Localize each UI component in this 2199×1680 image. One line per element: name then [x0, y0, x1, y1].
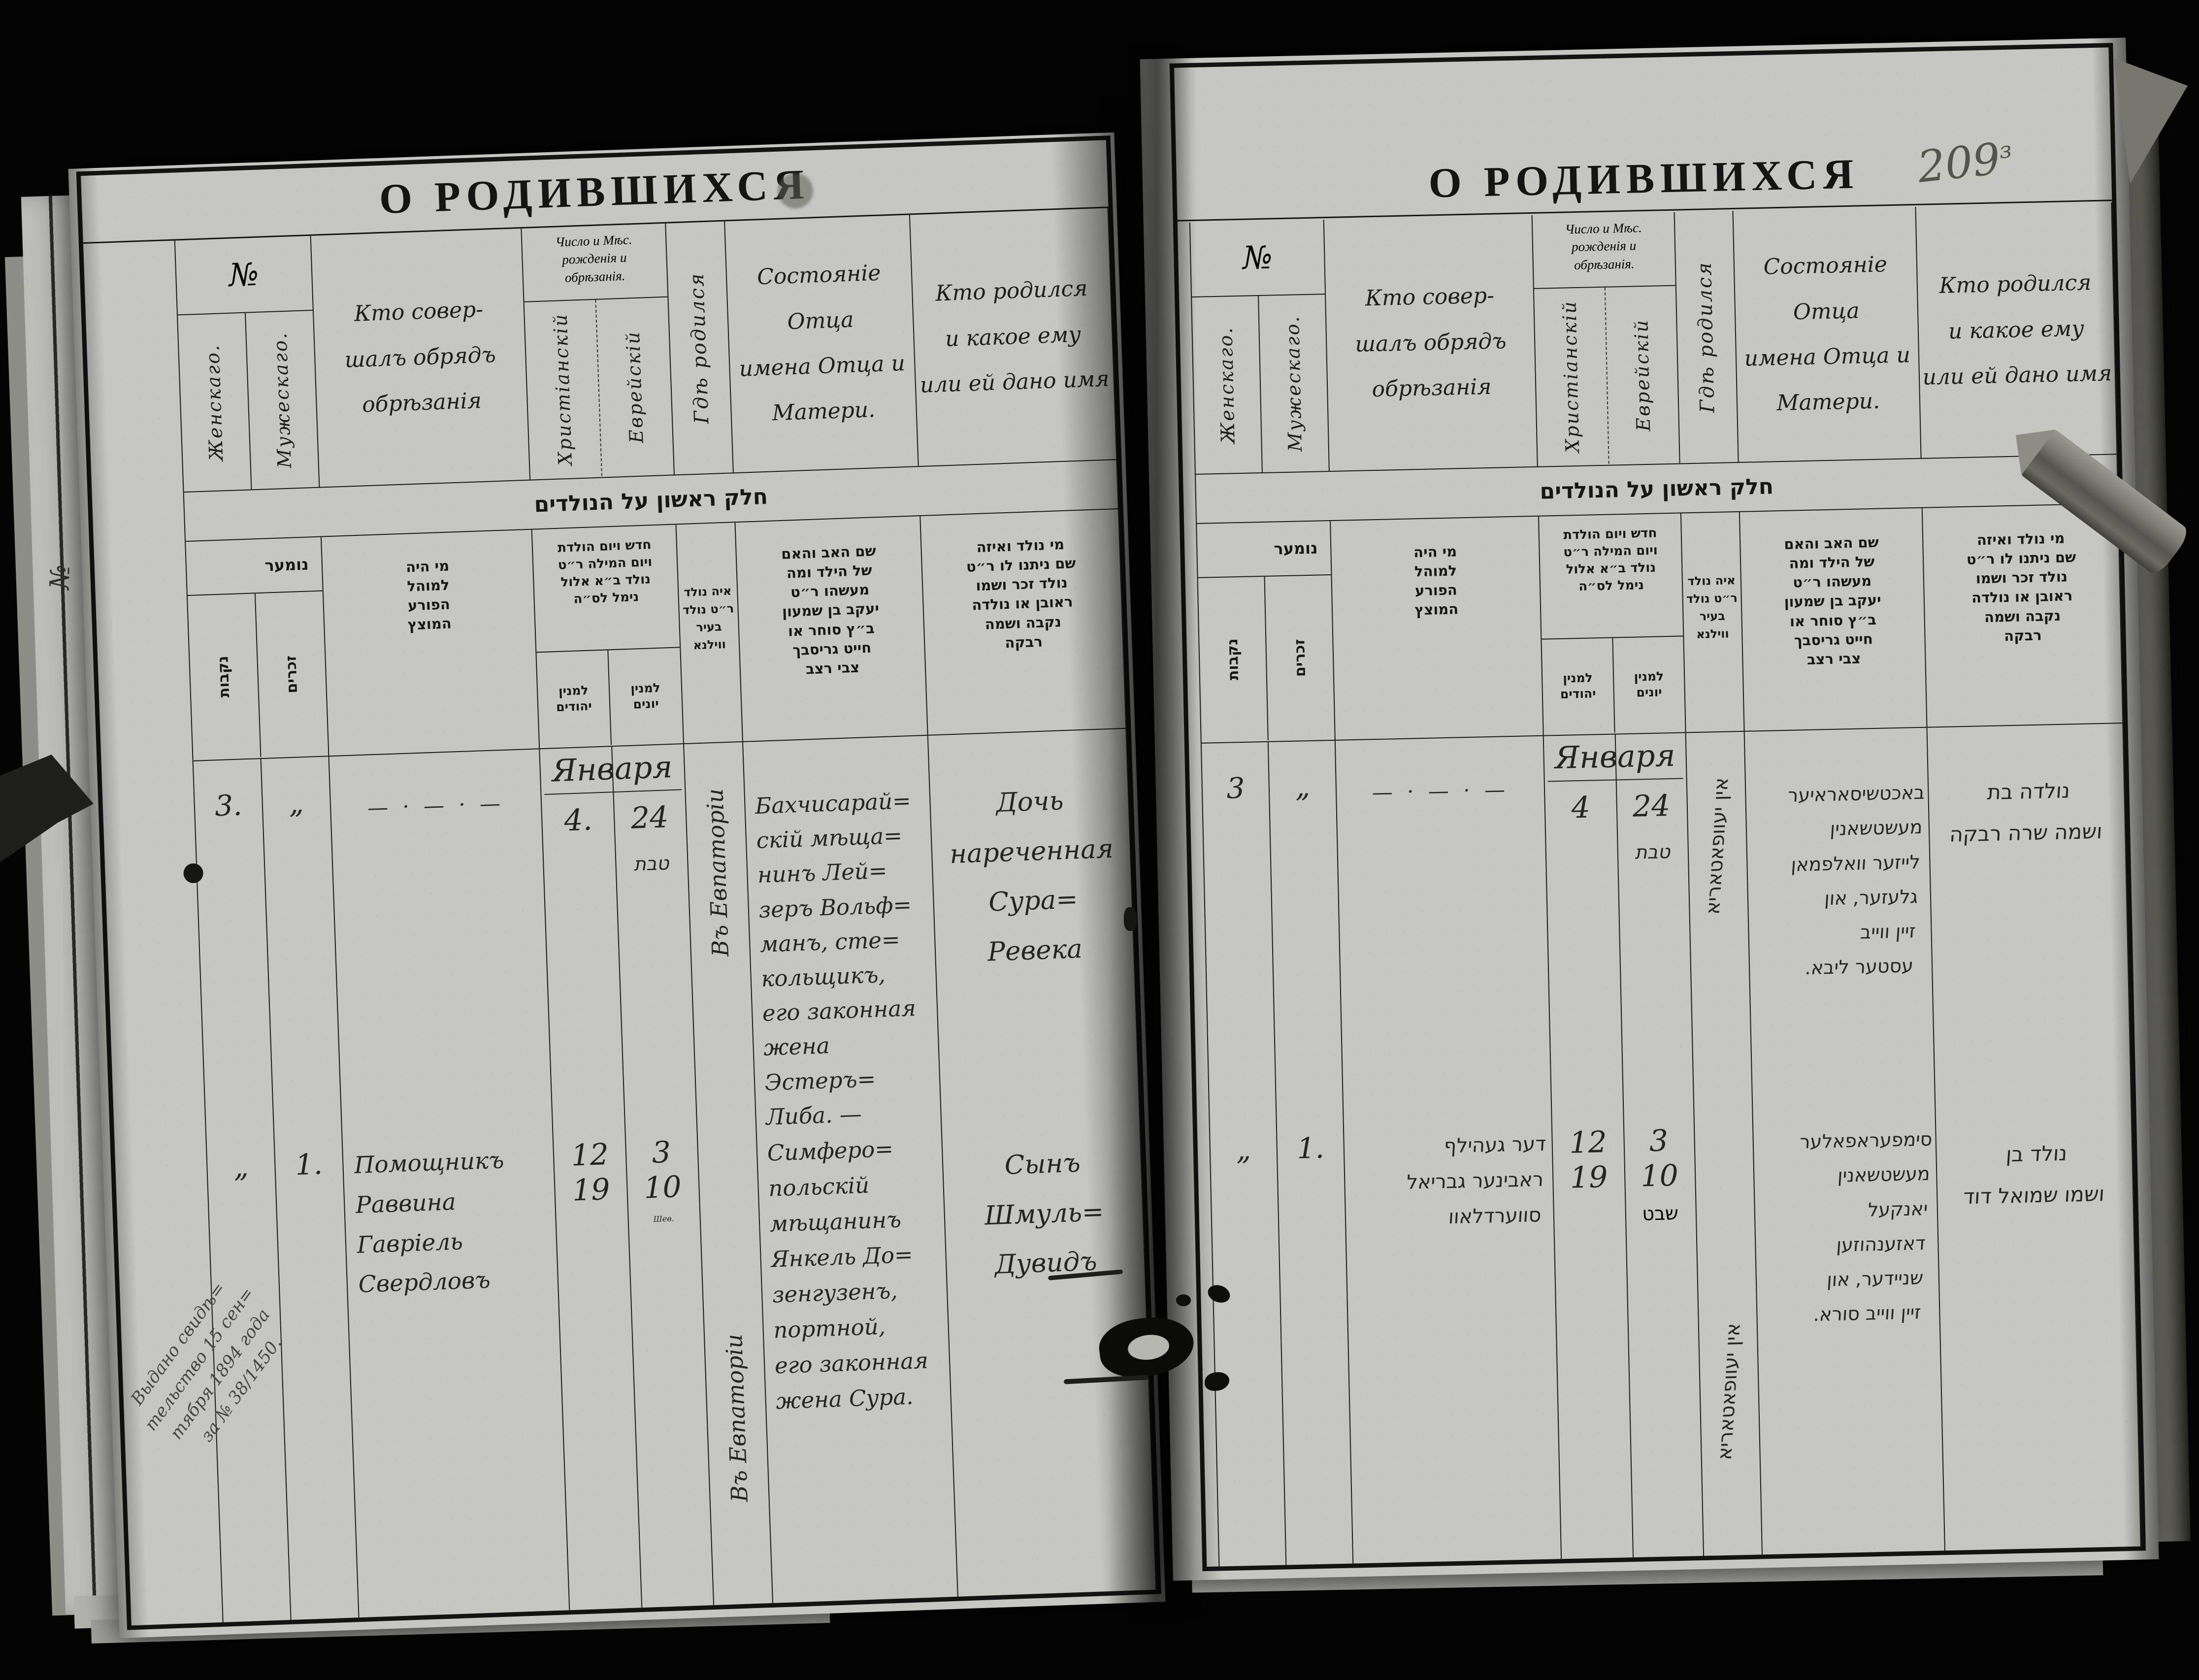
entry1-jewish-month: טבת [615, 852, 688, 876]
hebrew-mohel-header: מי היה למוהל הפורע המוצץ [322, 530, 540, 757]
ink-dot [1176, 1294, 1191, 1306]
jewish-subcol: Еврейскій [596, 297, 674, 476]
right-page: О РОДИВШИХСЯ 209з № Женскаго. Мужескаго.… [1140, 38, 2159, 1581]
jewish-count-label: למנין יהודים [537, 650, 612, 747]
date-subcolumns: Христіанскій Еврейскій [525, 297, 674, 479]
male-label: Мужескаго. [269, 331, 295, 469]
body-child-r: נולדה בת ושמה שרה רבקה נולד בן ושמו שמוא… [1927, 724, 2141, 1550]
hebrew-female-subcol-r: נקבות [1198, 577, 1269, 742]
greek-count-label-r: למנין יונים [1613, 636, 1685, 732]
entry1-day-jewish: 24 [613, 799, 686, 836]
hebrew-date-text-r: חדש ויום הולדת ויום המילה ר״ט נולד ב״א א… [1539, 513, 1683, 639]
jewish-count-label-r: למנין יהודים [1542, 638, 1615, 734]
entry2-mohel: Помощникъ Раввина Гавріель Свердловъ [354, 1139, 553, 1305]
previous-page-number-sign: № [44, 564, 76, 590]
hebrew-male-subcol-r: זכרים [1265, 575, 1335, 740]
hebrew-number-subcols: נקבות זכרים [188, 592, 328, 759]
hebrew-date-header-r: חדש ויום הולדת ויום המילה ר״ט נולד ב״א א… [1539, 513, 1686, 736]
right-register-table: № Женскаго. Мужескаго. Кто совер- шалъ о… [1189, 202, 2141, 1566]
entry2-days-jewish-r: 3 10 [1623, 1123, 1695, 1194]
male-subcol: Мужескаго. [246, 311, 319, 490]
greek-count-label: למנין יונים [609, 648, 683, 745]
entry2-days-jewish: 3 10 [625, 1134, 699, 1207]
entry1-child-name: Дочь нареченная Сура= Ревека [937, 774, 1128, 979]
hebrew-number-header: נומער נקבות זכרים [186, 537, 329, 761]
hebrew-female-subcol: נקבות [188, 593, 261, 759]
number-sign-r: № [1190, 220, 1325, 297]
hebrew-female-label: נקבות [215, 656, 233, 698]
mohel-column-header-r: Кто совер- шалъ обрядъ обрѣзанія [1324, 215, 1538, 472]
christian-subcol: Христіанскій [525, 300, 603, 479]
date-column-header: Число и Мѣс. рожденія и обрѣзанія. Христ… [522, 224, 674, 481]
christian-label: Христіанскій [550, 313, 577, 466]
entry2-child-name: Сынъ Шмуль= Дувидъ [949, 1137, 1139, 1292]
body-mohel-r: — · — · — דער געהילף ראבינער גבריאל סווע… [1336, 736, 1562, 1564]
hebrew-male-label-r: זכרים [1291, 639, 1309, 677]
hebrew-count-subcols-r: למנין יהודים למנין יונים [1542, 636, 1685, 734]
hebrew-date-header: חדש ויום הולדת ויום המילה ר״ט נולד ב״א א… [532, 525, 684, 749]
jewish-label: Еврейскій [622, 330, 648, 443]
entry2-mohel-r: דער געהילף ראבינער גבריאל סווערדלאוו [1347, 1126, 1547, 1237]
entry2-days-christian-r: 12 19 [1552, 1124, 1624, 1196]
page-number: 209з [1915, 132, 2015, 193]
mohel-column-header: Кто совер- шалъ обрядъ обрѣзанія [311, 229, 530, 488]
page-title-right: О РОДИВШИХСЯ [1428, 149, 1860, 207]
entry2-where-r: אין יעוופאטאריא [1713, 1323, 1745, 1460]
entry1-parents-r: באכטשיסאראיער מעשטשאנין לייזער וואלפמאן … [1746, 775, 1926, 987]
entry2-days-christian: 12 19 [554, 1137, 627, 1209]
entry2-child-name-r: נולד בן ושמו שמואל דוד [1941, 1131, 2129, 1218]
number-subcolumns-r: Женскаго. Мужескаго. [1192, 295, 1329, 474]
jewish-label-r: Еврейскій [1630, 318, 1654, 431]
body-parents: Бахчисарай= скій мѣща= нинъ Лей= зеръ Во… [743, 736, 958, 1603]
entry1-number-female: 3. [195, 788, 263, 824]
hebrew-count-subcols: למנין יהודים למנין יונים [537, 648, 683, 747]
female-label: Женскаго. [201, 343, 227, 461]
male-subcol-r: Мужескаго. [1259, 295, 1329, 472]
hebrew-male-label: זכרים [283, 655, 301, 693]
entry2-number-female-r: „ [1210, 1132, 1277, 1167]
body-mohel: — · — · — Помощникъ Раввина Гавріель Све… [329, 749, 570, 1617]
hebrew-where-header: איה נולד ר״ט נולד בעיר ווילנא [676, 523, 743, 744]
entry2-parents-r: סימפעראפאלער מעשטשאנין יאנקעל דאזענהוזען… [1753, 1122, 1933, 1334]
entry2-number-female: „ [207, 1149, 275, 1185]
male-label-r: Мужескаго. [1281, 315, 1306, 452]
entry2-where: Въ Евпаторіи [721, 1333, 753, 1502]
female-label-r: Женскаго. [1214, 326, 1239, 444]
hebrew-number-header-r: נומער נקבות זכרים [1197, 521, 1336, 744]
entry1-jewish-month-r: טבת [1617, 840, 1688, 863]
entry1-child-name-r: נולדה בת ושמה שרה רבקה [1934, 769, 2121, 856]
child-column-header: Кто родился и какое ему или ей дано имя [910, 208, 1117, 467]
ink-dot [1124, 907, 1137, 931]
entry1-day-christian-r: 4 [1545, 790, 1616, 825]
entry1-number-male: „ [263, 785, 330, 821]
date-subcolumns-r: Христіанскій Еврейскій [1534, 286, 1679, 465]
body-dates-r: Января 4 12 19 24 טבת 3 10 שבט [1544, 733, 1704, 1559]
entry1-mohel-dash: — · — · — [330, 790, 541, 821]
hebrew-parents-header-r: שם האב והאם של הילד ומה מעשהו ר״ט יעקב ב… [1740, 508, 1927, 732]
number-subcolumns: Женскаго. Мужескаго. [178, 311, 319, 492]
entry1-day-christian: 4. [542, 802, 615, 839]
entry2-parents: Симферо= польскій мѣщанинъ Янкель До= зе… [767, 1130, 946, 1419]
page-number-suffix: з [1998, 136, 2013, 164]
hebrew-number-sign-r: נומער [1197, 521, 1331, 578]
page-title: О РОДИВШИХСЯ [378, 159, 811, 223]
parents-column-header-r: Состояніе Отца имена Отца и Матери. [1733, 207, 1921, 463]
body-dates: Января 4. 12 19 24 טבת 3 10 Шев. [540, 744, 714, 1610]
number-column-header-r: № Женскаго. Мужескаго. [1190, 220, 1330, 475]
hebrew-parents-header: שם האב והאם של הילד ומה מעשהו ר״ט יעקב ב… [735, 516, 928, 742]
hebrew-date-text: חדש ויום הולדת ויום המילה ר״ט נולד ב״א א… [532, 525, 680, 653]
entry2-jewish-month: Шев. [628, 1213, 700, 1225]
hebrew-female-label-r: נקבות [1224, 638, 1242, 681]
christian-subcol-r: Христіанскій [1534, 288, 1609, 465]
date-label: Число и Мѣс. рожденія и обрѣзанія. [522, 224, 667, 302]
entry2-number-male-r: 1. [1277, 1131, 1344, 1166]
entry1-number-female-r: 3 [1202, 771, 1269, 806]
hebrew-child-header: מי נולד ואיזה שם ניתנו לו ר״ט נולד זכר ו… [920, 509, 1127, 736]
child-column-header-r: Кто родился и какое ему или ей дано имя [1916, 202, 2117, 459]
hebrew-number-subcols-r: נקבות זכרים [1198, 575, 1335, 742]
entry1-number-male-r: „ [1269, 769, 1336, 804]
hebrew-child-header-r: מי נולד ואיזה שם ניתנו לו ר״ט נולד זכר ו… [1923, 504, 2124, 728]
female-subcol: Женскаго. [178, 313, 252, 492]
where-column-header-r: Гдѣ родился [1675, 211, 1739, 464]
page-number-value: 209 [1915, 133, 2002, 193]
body-child: Дочь нареченная Сура= Ревека Сынъ Шмуль=… [928, 729, 1157, 1597]
left-page: О РОДИВШИХСЯ № Женскаго. Мужескаго. Кто … [68, 132, 1166, 1638]
jewish-subcol-r: Еврейскій [1605, 286, 1679, 464]
hebrew-male-subcol: זכרים [256, 592, 328, 758]
entry1-parents: Бахчисарай= скій мѣща= нинъ Лей= зеръ Во… [755, 783, 936, 1134]
female-subcol-r: Женскаго. [1192, 296, 1263, 474]
where-label-r: Гдѣ родился [1693, 261, 1719, 413]
body-parents-r: באכטשיסאראיער מעשטשאנין לייזער וואלפמאן … [1744, 728, 1945, 1555]
where-label: Гдѣ родился [685, 272, 713, 424]
entry1-where: Въ Евпаторіи [701, 788, 734, 957]
date-column-header-r: Число и Мѣс. рожденія и обрѣзанія. Христ… [1533, 212, 1680, 467]
right-title-band: О РОДИВШИХСЯ 209з [1174, 47, 2112, 221]
where-column-header: Гдѣ родился [666, 222, 734, 476]
entry1-day-jewish-r: 24 [1616, 788, 1687, 824]
christian-label-r: Христіанскій [1559, 300, 1584, 453]
number-sign: № [175, 236, 313, 315]
hebrew-number-sign: נומער [186, 537, 322, 596]
entry2-number-male: 1. [275, 1147, 343, 1183]
hebrew-where-header-r: איה נולד ר״ט נולד בעיר ווילנא [1681, 512, 1744, 733]
right-page-frame: О РОДИВШИХСЯ 209з № Женскаго. Мужескаго.… [1170, 43, 2146, 1571]
number-column-header: № Женскаго. Мужескаго. [175, 236, 320, 493]
parents-column-header: Состояніе Отца имена Отца и Матери. [725, 215, 919, 473]
entry1-where-r: אין יעוופאטאריא [1702, 777, 1733, 915]
left-register-table: № Женскаго. Мужескаго. Кто совер- шалъ о… [174, 208, 1157, 1622]
entry1-mohel-dash-r: — · — · — [1337, 777, 1544, 805]
hebrew-mohel-header-r: מי היה למוהל הפורע המוצץ [1331, 517, 1544, 741]
date-label-r: Число и Мѣс. рожденія и обрѣзанія. [1533, 212, 1675, 289]
entry2-jewish-month-r: שבט [1625, 1202, 1696, 1225]
